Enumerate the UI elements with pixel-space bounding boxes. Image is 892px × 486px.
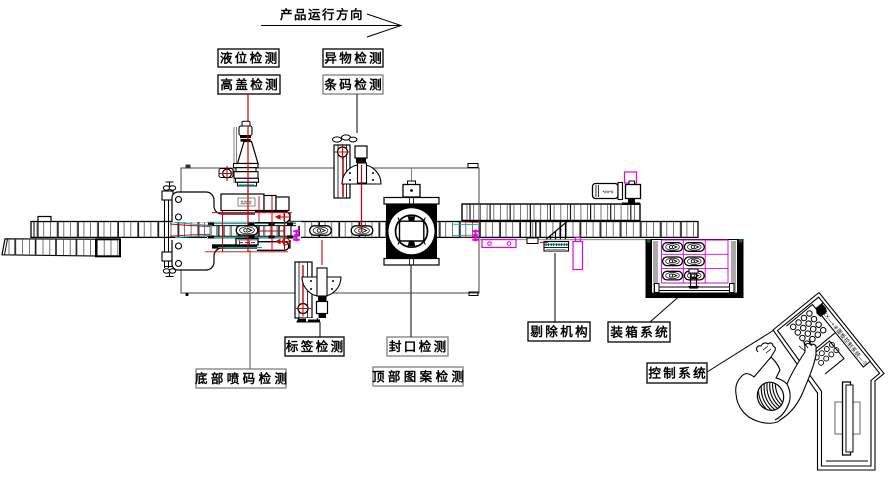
svg-text:剔除机构: 剔除机构	[529, 324, 590, 339]
svg-text:装箱系统: 装箱系统	[609, 325, 670, 340]
svg-text:标签检测: 标签检测	[285, 339, 346, 354]
svg-text:产品运行方向: 产品运行方向	[280, 7, 364, 22]
svg-text:*##*#: *##*#	[602, 190, 614, 195]
svg-text:####: ####	[240, 201, 251, 207]
svg-text:控制系统: 控制系统	[648, 366, 708, 381]
svg-text:底部喷码检测: 底部喷码检测	[195, 371, 290, 386]
svg-text:条码检测: 条码检测	[323, 77, 384, 92]
svg-text:异物检测: 异物检测	[324, 51, 384, 66]
svg-text:顶部图案检测: 顶部图案检测	[372, 369, 467, 384]
svg-text:高盖检测: 高盖检测	[220, 77, 280, 92]
svg-text:液位检测: 液位检测	[220, 51, 280, 66]
svg-text:封口检测: 封口检测	[389, 339, 449, 354]
